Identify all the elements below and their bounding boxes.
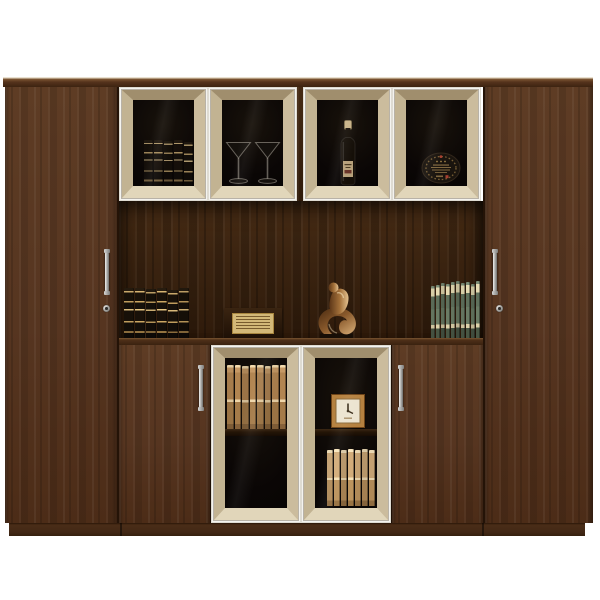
- champagne-frame: [395, 90, 478, 198]
- product-photo: [0, 0, 600, 600]
- book-spine: [461, 283, 465, 338]
- champagne-frame: [306, 90, 389, 198]
- book-spine: [179, 288, 189, 338]
- green-volume-set: [431, 281, 480, 338]
- book-spine: [471, 284, 475, 338]
- book-spine: [146, 289, 156, 338]
- book-spine: [476, 281, 480, 338]
- encyclopedia-books: [144, 140, 193, 186]
- bronze-figurine: [315, 277, 359, 339]
- book-spine: [451, 282, 455, 338]
- center-hutch: [119, 87, 483, 523]
- book-spine: [227, 365, 234, 429]
- book-spine: [436, 285, 440, 338]
- top-display-row: [119, 87, 483, 201]
- champagne-frame: [122, 90, 205, 198]
- commemorative-plate: [419, 152, 463, 184]
- left-cabinet-keyhole: [103, 305, 110, 312]
- glass-pane: [133, 100, 194, 186]
- champagne-frame: [214, 348, 298, 520]
- book-spine: [466, 282, 470, 338]
- glass-pane: [315, 358, 377, 508]
- bottom-door-row: [119, 345, 483, 523]
- book-spine: [280, 365, 287, 429]
- bottom-glass-door-right: [301, 345, 391, 523]
- glass-pane: [225, 358, 287, 508]
- wall-cabinet: [5, 77, 591, 536]
- certificate-plaque: [224, 308, 282, 340]
- book-spine: [124, 288, 134, 338]
- book-spine: [446, 284, 450, 338]
- book-spine: [257, 365, 264, 429]
- book-spine: [355, 450, 361, 506]
- book-spine: [265, 366, 272, 429]
- bottom-glass-door-left: [211, 345, 301, 523]
- plinth-seam: [120, 523, 122, 536]
- right-side-cabinet-door: [483, 87, 593, 523]
- bottom-right-handle: [399, 368, 403, 408]
- plinth-seam: [482, 523, 484, 536]
- display-door-books: [119, 87, 208, 201]
- bottom-left-wood-door: [119, 345, 211, 523]
- book-spine: [168, 290, 178, 338]
- martini-glasses: [225, 141, 281, 185]
- book-spine: [242, 366, 249, 429]
- champagne-frame: [304, 348, 388, 520]
- glass-pane: [317, 100, 378, 186]
- shelf-surface: [119, 338, 483, 345]
- book-spine: [431, 286, 435, 338]
- interior-shelf: [315, 429, 377, 436]
- book-spine: [334, 449, 340, 506]
- left-cabinet-handle: [105, 252, 109, 292]
- book-spine: [164, 141, 173, 186]
- book-spine: [272, 365, 279, 429]
- book-spine: [235, 365, 242, 429]
- right-cabinet-keyhole: [496, 305, 503, 312]
- book-spine: [327, 450, 333, 506]
- display-door-plate: [392, 87, 481, 201]
- book-spine: [157, 288, 167, 338]
- book-spine: [456, 281, 460, 338]
- bottom-right-wood-door: [391, 345, 483, 523]
- tan-books-lower: [327, 449, 375, 506]
- encyclopedia-set: [124, 288, 189, 338]
- tan-books-upper: [227, 365, 286, 429]
- glass-pane: [406, 100, 467, 186]
- book-spine: [348, 449, 354, 506]
- display-door-martini: [208, 87, 297, 201]
- plaque-face: [232, 313, 274, 334]
- bottom-left-handle: [199, 368, 203, 408]
- right-cabinet-handle: [493, 252, 497, 292]
- plinth-base: [9, 523, 585, 536]
- champagne-frame: [211, 90, 294, 198]
- book-spine: [135, 288, 145, 338]
- open-shelf-alcove: [119, 201, 483, 345]
- book-spine: [144, 140, 153, 186]
- wooden-clock: [331, 394, 365, 428]
- book-spine: [362, 449, 368, 506]
- glass-pane: [222, 100, 283, 186]
- display-door-bottle: [303, 87, 392, 201]
- wine-bottle: [337, 120, 359, 186]
- interior-shelf: [225, 429, 287, 436]
- book-spine: [369, 450, 375, 506]
- cabinet-top-board: [3, 77, 593, 87]
- book-spine: [174, 140, 183, 186]
- book-spine: [184, 142, 193, 186]
- book-spine: [341, 450, 347, 506]
- book-spine: [154, 140, 163, 186]
- book-spine: [441, 283, 445, 338]
- book-spine: [250, 365, 257, 429]
- left-side-cabinet-door: [5, 87, 119, 523]
